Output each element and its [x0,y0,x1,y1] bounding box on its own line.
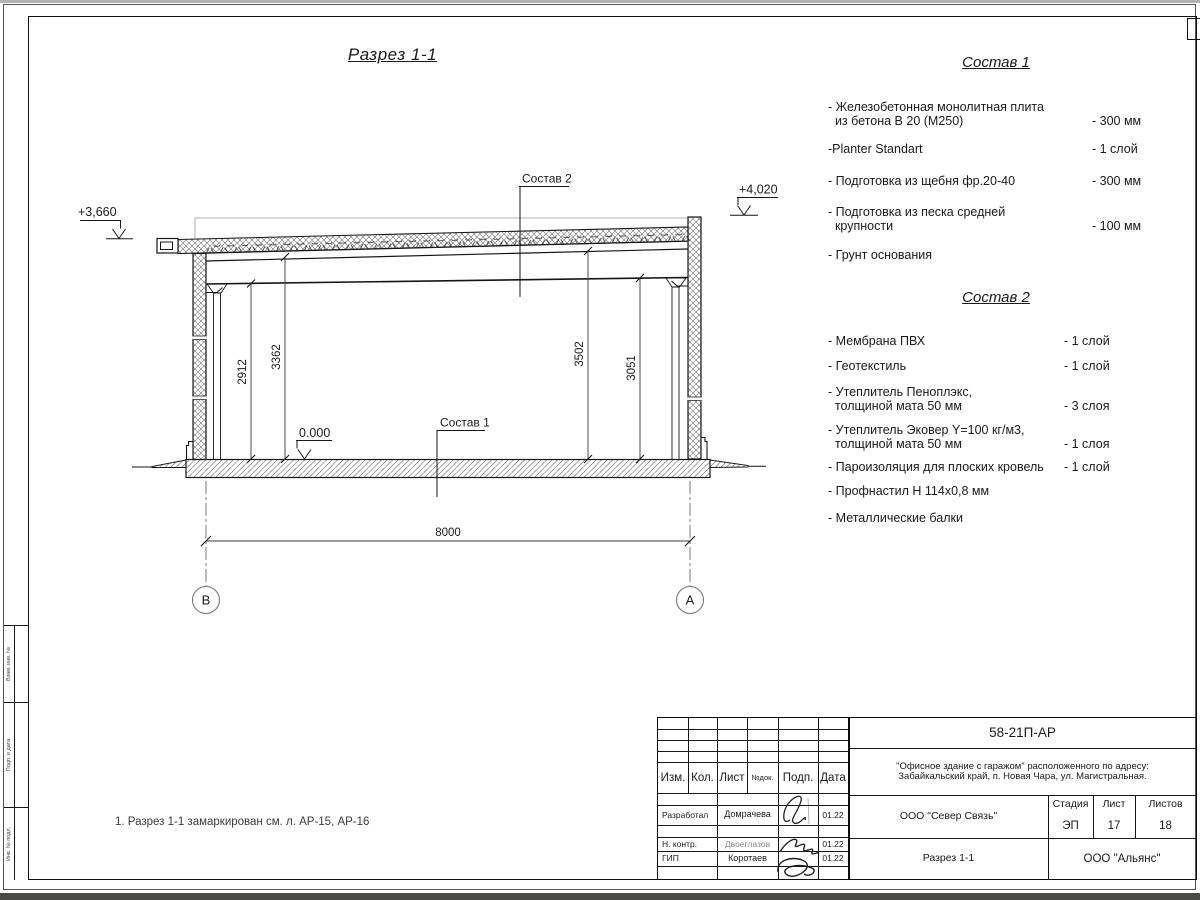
layer-label: - Утеплитель Эковер Y=100 кг/м3, толщино… [828,423,1064,451]
right-wall [687,217,707,459]
layer-label: - Геотекстиль [828,359,1064,373]
elevation-left-value: +3,660 [78,205,117,219]
tb-stage-label: Стадия [1048,795,1093,815]
layer-label: - Подготовка из щебня фр.20-40 [828,174,1092,188]
sostav1-list: Состав 1 - Железобетонная монолитная пли… [828,52,1164,282]
layer-label: - Утеплитель Пеноплэкс, толщиной мата 50… [828,385,1064,413]
layer-item: - Утеплитель Пеноплэкс, толщиной мата 50… [828,385,1164,413]
view-title: Разрез 1-1 [320,44,465,66]
beam-line [206,278,688,293]
elevation-right-value: +4,020 [739,183,778,197]
callout-sostav1: Состав 1 [437,416,491,498]
layer-label: -Planter Standart [828,142,1092,156]
tb-role-gip: ГИП [659,851,717,866]
tb-sheet-title: Разрез 1-1 [849,838,1048,880]
layer-value: - 1 слой [1064,359,1164,373]
tb-name-dvoeglazov: Двоеглазов [717,837,778,851]
layer-label: - Подготовка из песка средней крупности [828,205,1092,233]
layer-item: - Грунт основания [828,248,1164,262]
layer-item: -Planter Standart - 1 слой [828,142,1164,156]
tb-sheets-label: Листов [1135,795,1196,815]
right-plinth [701,438,707,460]
callout-sostav1-label: Состав 1 [440,416,490,430]
tb-name-domracheva: Домрачева [717,805,778,825]
layer-value: - 300 мм [1092,114,1164,128]
layer-value: - 1 слой [1064,334,1164,348]
tb-col-doc: №док. [747,766,778,790]
layer-label: - Мембрана ПВХ [828,334,1064,348]
left-wall [187,254,207,460]
tb-project-name: "Офисное здание с гаражом" расположенног… [849,750,1196,794]
tb-name-korotaev: Коротаев [717,851,778,866]
blind-area-left [152,460,186,468]
dim-3362: 3362 [271,344,283,370]
tb-date-3: 01.22 [818,851,848,866]
tb-contractor: ООО "Север Связь" [849,795,1048,838]
dim-2912: 2912 [237,359,249,385]
layer-value: - 1 слой [1092,142,1164,156]
right-column [666,278,686,459]
tb-role-razrabotal: Разработал [659,805,717,825]
layer-value: - 300 мм [1092,174,1164,188]
elevation-left: +3,660 [78,205,133,239]
callout-sostav2-label: Состав 2 [522,172,572,186]
tb-col-list: Лист [717,766,747,790]
layer-item: - Подготовка из щебня фр.20-40 - 300 мм [828,174,1164,188]
sostav2-title: Состав 2 [828,289,1164,306]
layer-item: - Пароизоляция для плоских кровель - 1 с… [828,460,1164,474]
tb-role-nkontr: Н. контр. [659,837,717,851]
floor-slab [132,460,766,478]
tb-company: ООО "Альянс" [1048,838,1196,880]
tb-sheet-value: 17 [1093,815,1135,838]
elevation-floor-value: 0.000 [299,426,330,440]
layer-value: - 1 слоя [1064,437,1164,451]
layer-item: - Геотекстиль - 1 слой [828,359,1164,373]
layer-value: - 3 слоя [1064,399,1164,413]
axis-letter-right: А [686,593,695,608]
left-column [207,284,227,459]
tb-col-kol: Кол. [688,766,717,790]
layer-label: - Профнастил Н 114х0,8 мм [828,484,1064,498]
layer-value: - 1 слой [1064,460,1164,474]
tb-doc-code: 58-21П-АР [849,718,1196,748]
span-dimension: 8000 В А [193,481,704,614]
layer-item: - Утеплитель Эковер Y=100 кг/м3, толщино… [828,423,1164,451]
layer-label: - Пароизоляция для плоских кровель [828,460,1064,474]
layer-label: - Железобетонная монолитная плита из бет… [828,100,1092,128]
dim-8000: 8000 [435,527,461,539]
sheet-note: 1. Разрез 1-1 замаркирован см. л. АР-15,… [115,816,369,828]
layer-item: - Железобетонная монолитная плита из бет… [828,100,1164,128]
left-plinth [187,442,194,460]
axis-letter-left: В [202,593,211,608]
tb-date-1: 01.22 [818,805,848,825]
tb-col-podp: Подп. [778,766,818,790]
layer-label: - Грунт основания [828,248,1092,262]
tb-col-izm: Изм. [658,766,688,790]
sostav1-title: Состав 1 [828,54,1164,71]
tb-sheets-value: 18 [1135,815,1196,838]
drawing-sheet: Взам. инв. № Подп. и дата Инв. № подл. [0,0,1200,900]
sostav2-list: Состав 2 - Мембрана ПВХ - 1 слой - Геоте… [828,287,1164,537]
elevation-floor: 0.000 [296,426,332,459]
layer-item: - Подготовка из песка средней крупности … [828,205,1164,233]
tb-sheet-label: Лист [1093,795,1135,815]
dim-3051: 3051 [626,355,638,381]
elevation-right: +4,020 [730,183,778,216]
layer-item: - Металлические балки [828,511,1164,525]
layer-item: - Мембрана ПВХ - 1 слой [828,334,1164,348]
layer-item: - Профнастил Н 114х0,8 мм [828,484,1164,498]
layer-label: - Металлические балки [828,511,1064,525]
blind-area-right [710,460,748,468]
tb-date-2: 01.22 [818,837,848,851]
tb-stage-value: ЭП [1048,815,1093,838]
layer-value: - 100 мм [1092,219,1164,233]
dim-3502: 3502 [574,341,586,367]
tb-col-data: Дата [818,766,848,790]
